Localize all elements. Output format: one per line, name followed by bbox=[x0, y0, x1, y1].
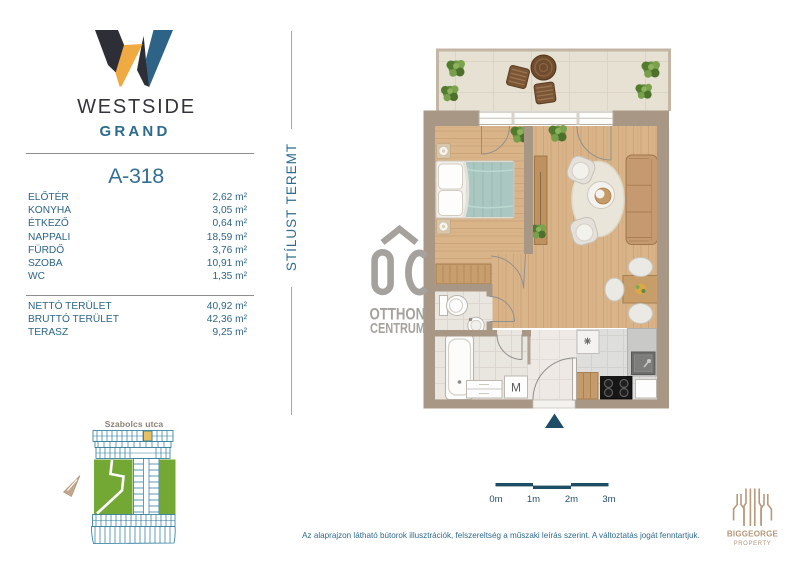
svg-text:M: M bbox=[511, 381, 521, 395]
svg-text:3m: 3m bbox=[602, 494, 615, 505]
svg-text:1m: 1m bbox=[527, 494, 540, 505]
svg-text:PROPERTY: PROPERTY bbox=[734, 541, 772, 547]
svg-text:CENTRUM: CENTRUM bbox=[370, 319, 425, 336]
svg-text:0m: 0m bbox=[489, 494, 502, 505]
svg-text:BIGGEORGE: BIGGEORGE bbox=[727, 530, 779, 539]
svg-text:2m: 2m bbox=[565, 494, 578, 505]
